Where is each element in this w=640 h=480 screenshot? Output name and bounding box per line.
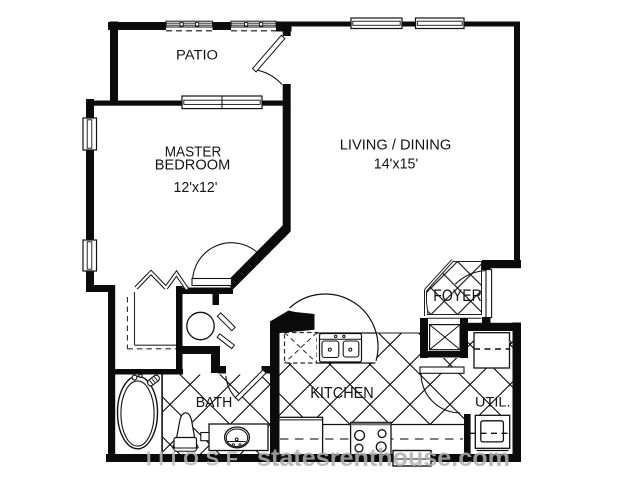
svg-text:KITCHEN: KITCHEN — [310, 385, 374, 402]
svg-text:12'x12': 12'x12' — [174, 180, 218, 196]
svg-text:14'x15': 14'x15' — [374, 156, 419, 172]
svg-text:FOYER: FOYER — [433, 287, 482, 305]
svg-text:BEDROOM: BEDROOM — [155, 158, 231, 174]
svg-text:LIVING / DINING: LIVING / DINING — [340, 138, 452, 154]
svg-text:BATH: BATH — [196, 395, 233, 411]
svg-text:statesrenthouse.com: statesrenthouse.com — [257, 444, 510, 472]
svg-text:PATIO: PATIO — [176, 47, 218, 62]
svg-text:UTIL.: UTIL. — [475, 394, 511, 410]
